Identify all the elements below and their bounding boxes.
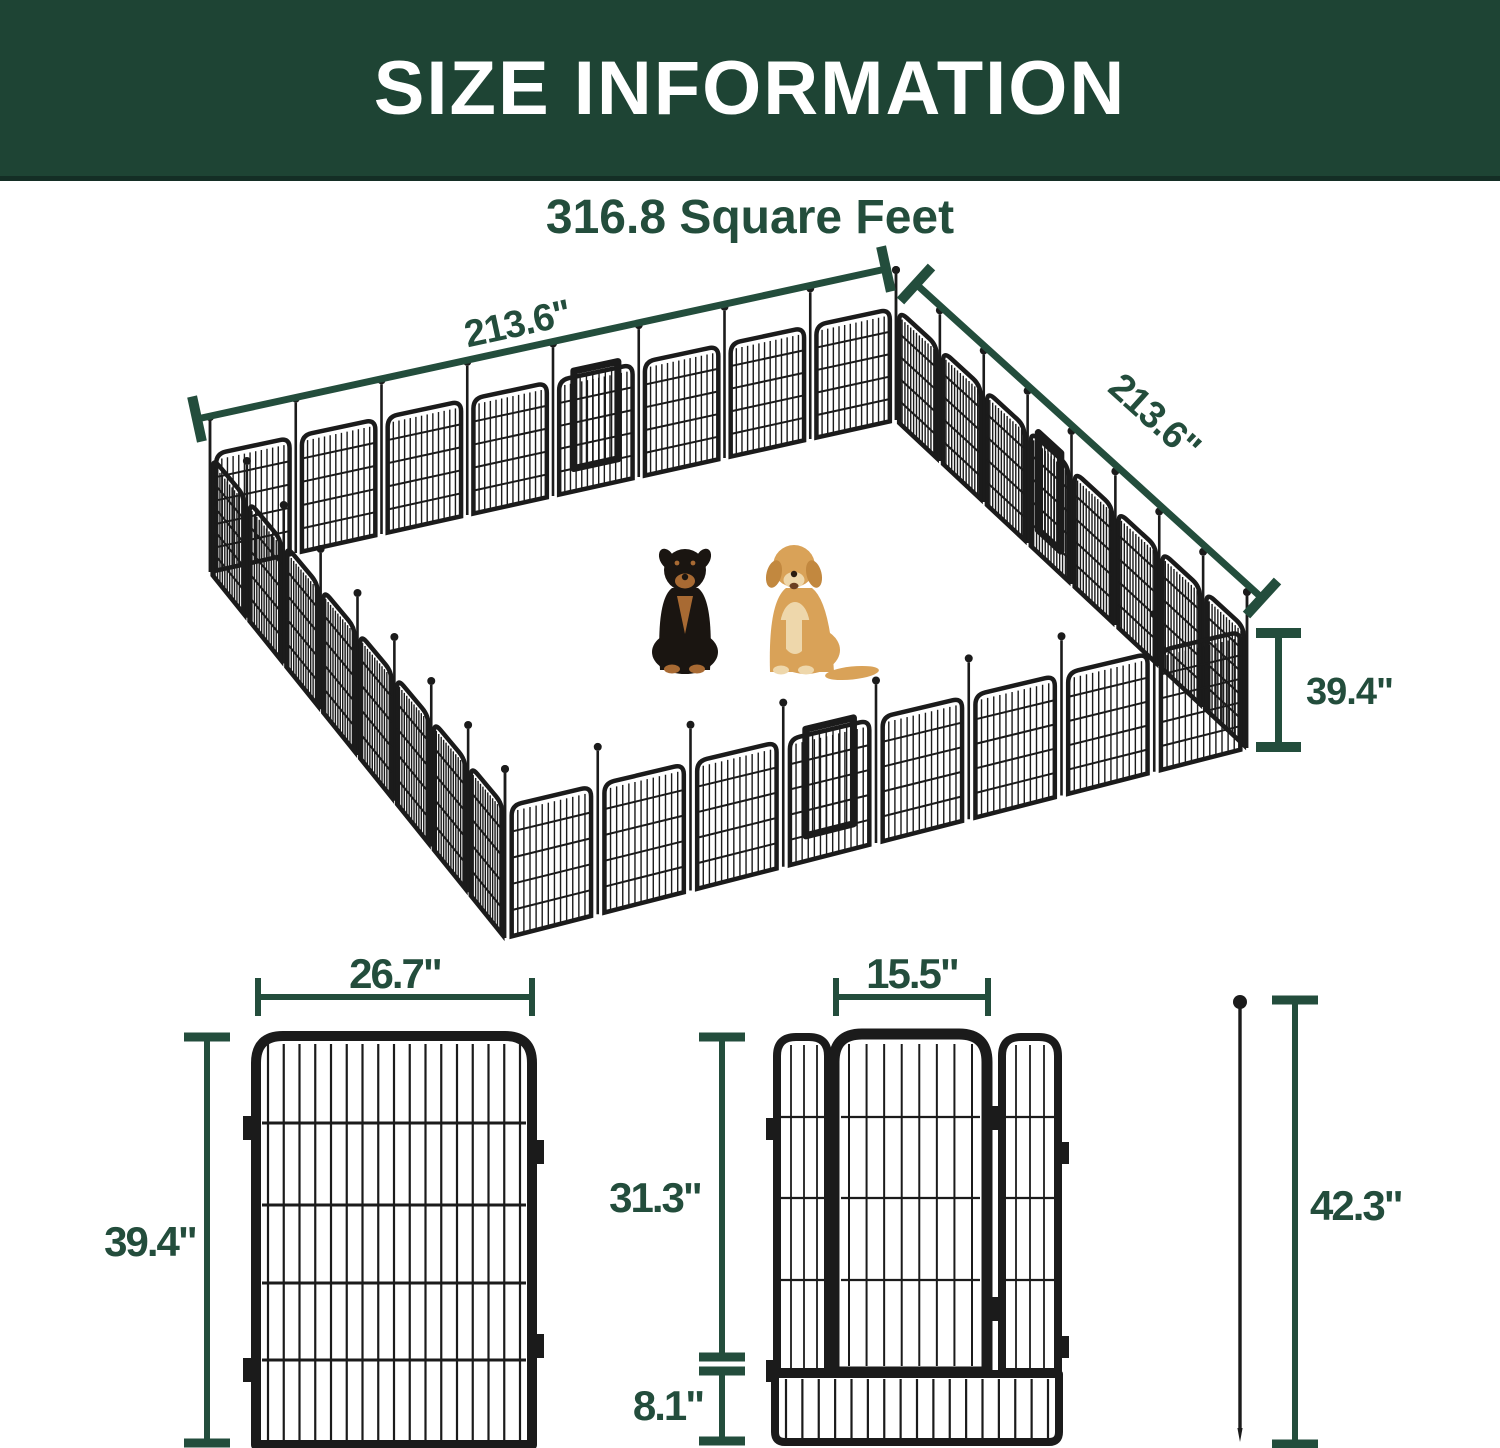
detail-figures: [243, 995, 1247, 1445]
dim-gate-height: 31.3": [609, 1037, 745, 1357]
size-diagram: 213.6" 213.6" 39.4" 26.7" 39: [0, 0, 1500, 1448]
dim-pen-height: 39.4": [1256, 633, 1393, 747]
gate-height-label: 31.3": [609, 1174, 701, 1221]
dim-cap: [881, 247, 891, 292]
panel-height-label: 39.4": [104, 1218, 196, 1265]
pen-depth-label: 213.6": [1100, 366, 1208, 469]
dim-stake-height: 42.3": [1272, 1000, 1402, 1444]
wall-front-left: [206, 413, 509, 938]
dog-golden-retriever: [763, 545, 879, 682]
rottweiler-brow-left: [675, 561, 680, 566]
dim-gate-bottom: 8.1": [633, 1371, 745, 1441]
dim-gate-width: 15.5": [836, 950, 988, 1016]
rottweiler-leg-right: [693, 618, 701, 668]
dog-rottweiler: [652, 546, 718, 674]
size-information-page: SIZE INFORMATION 316.8 Square Feet: [0, 0, 1500, 1448]
gate-detail-figure: [766, 1034, 1069, 1442]
stake-figure: [1233, 995, 1247, 1442]
golden-nose: [791, 571, 797, 577]
rottweiler-leg-left: [669, 618, 677, 668]
golden-paw-left: [773, 666, 789, 675]
rottweiler-nose: [682, 574, 688, 580]
dim-panel-width: 26.7": [258, 950, 532, 1016]
pen-height-label: 39.4": [1306, 671, 1393, 713]
dim-panel-height: 39.4": [104, 1037, 230, 1443]
rottweiler-paw-left: [664, 665, 680, 674]
golden-paw-right: [798, 666, 814, 675]
golden-leg-left: [778, 620, 786, 670]
golden-leg-right: [802, 620, 810, 670]
panel-detail-figure: [243, 1036, 544, 1445]
golden-mouth: [790, 583, 799, 589]
stake-height-label: 42.3": [1310, 1182, 1402, 1229]
dim-cap: [192, 397, 202, 442]
rottweiler-paw-right: [689, 665, 705, 674]
gate-bottom-label: 8.1": [633, 1382, 703, 1429]
panel-width-label: 26.7": [349, 950, 441, 997]
dogs: [652, 545, 880, 682]
gate-width-label: 15.5": [866, 950, 958, 997]
rottweiler-brow-right: [691, 561, 696, 566]
